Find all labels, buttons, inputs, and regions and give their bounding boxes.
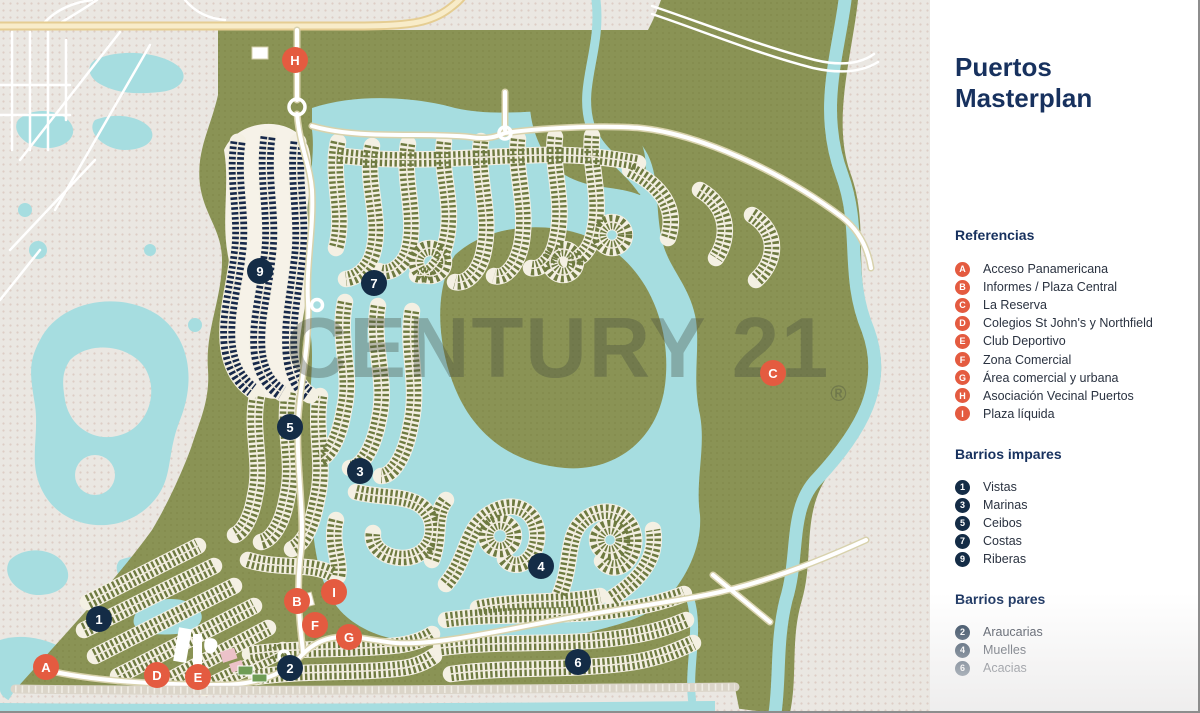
legend-label: Área comercial y urbana <box>983 371 1118 385</box>
legend-item: G Área comercial y urbana <box>955 369 1190 387</box>
legend-badge: 9 <box>955 552 970 567</box>
legend-item: I Plaza líquida <box>955 405 1190 423</box>
legend-item: C La Reserva <box>955 296 1190 314</box>
legend-label: Marinas <box>983 498 1027 512</box>
map-marker[interactable]: 6 <box>565 649 591 675</box>
barrios-pares-heading: Barrios pares <box>955 591 1045 607</box>
map-marker[interactable]: C <box>760 360 786 386</box>
legend-item: 1 Vistas <box>955 478 1190 496</box>
legend-badge: 1 <box>955 480 970 495</box>
legend-badge: 6 <box>955 661 970 676</box>
legend-panel: Puertos Masterplan Referencias A Acceso … <box>930 0 1200 713</box>
legend-item: E Club Deportivo <box>955 332 1190 350</box>
map-marker[interactable]: F <box>302 612 328 638</box>
legend-badge: G <box>955 370 970 385</box>
legend-label: Muelles <box>983 643 1026 657</box>
legend-badge: F <box>955 352 970 367</box>
legend-item: 2 Araucarias <box>955 623 1190 641</box>
legend-label: Club Deportivo <box>983 334 1066 348</box>
barrios-impares-list: 1 Vistas 3 Marinas 5 Ceibos 7 Costas 9 R… <box>955 478 1190 568</box>
legend-item: 7 Costas <box>955 532 1190 550</box>
legend-badge: H <box>955 388 970 403</box>
map-marker[interactable]: E <box>185 664 211 690</box>
legend-badge: E <box>955 334 970 349</box>
map-marker[interactable]: 2 <box>277 655 303 681</box>
legend-label: Asociación Vecinal Puertos <box>983 389 1134 403</box>
map-marker[interactable]: 9 <box>247 258 273 284</box>
legend-label: Riberas <box>983 552 1026 566</box>
legend-item: 6 Acacias <box>955 659 1190 677</box>
legend-label: Colegios St John's y Northfield <box>983 316 1153 330</box>
map-marker[interactable]: 3 <box>347 458 373 484</box>
legend-item: 4 Muelles <box>955 641 1190 659</box>
legend-badge: 2 <box>955 625 970 640</box>
page-title: Puertos Masterplan <box>955 52 1145 114</box>
legend-item: A Acceso Panamericana <box>955 260 1190 278</box>
legend-item: F Zona Comercial <box>955 350 1190 368</box>
legend-item: 5 Ceibos <box>955 514 1190 532</box>
barrios-impares-heading: Barrios impares <box>955 446 1062 462</box>
legend-label: La Reserva <box>983 298 1047 312</box>
legend-badge: B <box>955 280 970 295</box>
legend-item: B Informes / Plaza Central <box>955 278 1190 296</box>
map-marker[interactable]: A <box>33 654 59 680</box>
map-marker[interactable]: I <box>321 579 347 605</box>
legend-label: Acceso Panamericana <box>983 262 1108 276</box>
legend-badge: A <box>955 262 970 277</box>
legend-label: Zona Comercial <box>983 353 1071 367</box>
legend-item: H Asociación Vecinal Puertos <box>955 387 1190 405</box>
puertos-masterplan-page: CENTURY 21® H97C5341IBFG26ADE Puertos Ma… <box>0 0 1200 713</box>
map-marker[interactable]: B <box>284 588 310 614</box>
legend-badge: 4 <box>955 643 970 658</box>
legend-label: Costas <box>983 534 1022 548</box>
legend-badge: 7 <box>955 534 970 549</box>
map-marker[interactable]: D <box>144 662 170 688</box>
legend-label: Ceibos <box>983 516 1022 530</box>
legend-item: 9 Riberas <box>955 550 1190 568</box>
legend-badge: I <box>955 406 970 421</box>
legend-badge: 5 <box>955 516 970 531</box>
legend-label: Vistas <box>983 480 1017 494</box>
map-marker[interactable]: G <box>336 624 362 650</box>
barrios-pares-list: 2 Araucarias 4 Muelles 6 Acacias <box>955 623 1190 677</box>
masterplan-map: CENTURY 21® H97C5341IBFG26ADE <box>0 0 932 713</box>
map-marker[interactable]: 1 <box>86 606 112 632</box>
legend-item: D Colegios St John's y Northfield <box>955 314 1190 332</box>
legend-badge: 3 <box>955 498 970 513</box>
referencias-heading: Referencias <box>955 227 1034 243</box>
legend-badge: D <box>955 316 970 331</box>
legend-badge: C <box>955 298 970 313</box>
map-marker[interactable]: 4 <box>528 553 554 579</box>
legend-label: Informes / Plaza Central <box>983 280 1117 294</box>
map-marker[interactable]: 7 <box>361 270 387 296</box>
legend-label: Plaza líquida <box>983 407 1055 421</box>
referencias-list: A Acceso Panamericana B Informes / Plaza… <box>955 260 1190 423</box>
legend-label: Acacias <box>983 661 1027 675</box>
map-marker[interactable]: 5 <box>277 414 303 440</box>
legend-item: 3 Marinas <box>955 496 1190 514</box>
map-marker[interactable]: H <box>282 47 308 73</box>
map-markers-layer: H97C5341IBFG26ADE <box>0 0 932 713</box>
legend-label: Araucarias <box>983 625 1043 639</box>
